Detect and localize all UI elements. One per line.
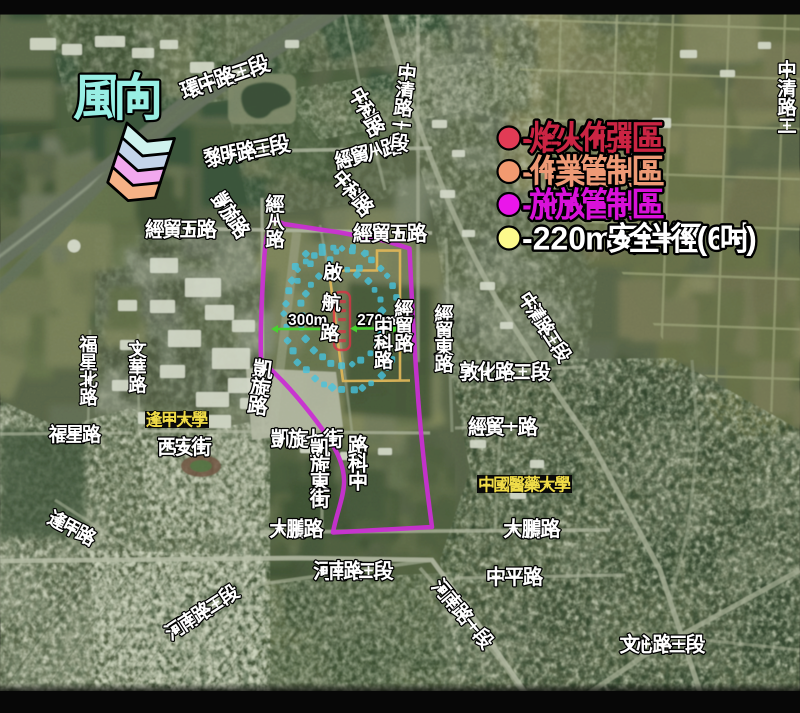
svg-text:2: 2 [533, 221, 551, 257]
svg-text:0: 0 [568, 221, 586, 257]
svg-text:): ) [746, 221, 757, 257]
svg-text:-: - [522, 221, 533, 257]
svg-text:0: 0 [297, 312, 306, 329]
svg-text:2: 2 [550, 221, 568, 257]
svg-text:2: 2 [357, 312, 366, 329]
svg-text:(: ( [697, 221, 708, 257]
